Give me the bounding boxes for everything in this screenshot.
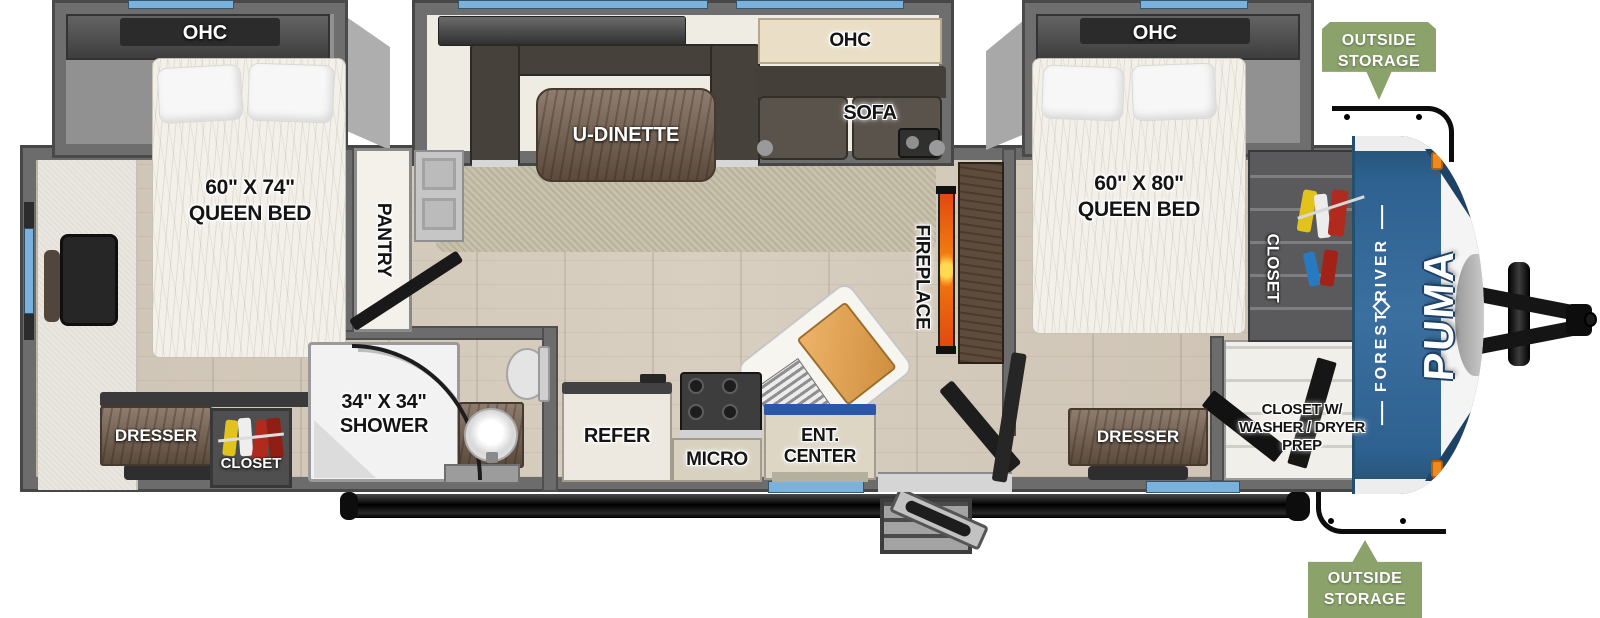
rv-floorplan: DRESSER CLOSET 34" X 34" SHOWER PANTRY U… bbox=[0, 0, 1600, 618]
rear-dresser-bench bbox=[124, 464, 216, 480]
rear-dresser-label: DRESSER bbox=[115, 426, 197, 446]
front-dresser: DRESSER bbox=[1068, 408, 1208, 466]
outside-storage-tag-top: OUTSIDE STORAGE bbox=[1322, 22, 1436, 100]
rear-wall-trim bbox=[24, 314, 34, 340]
rivet-dot bbox=[1328, 518, 1334, 524]
sofa-recliner-handle bbox=[929, 140, 945, 156]
front-bed-label-wrap: 60" X 80" QUEEN BED bbox=[1049, 166, 1229, 228]
faucet bbox=[486, 452, 498, 463]
tv-mount bbox=[44, 250, 60, 322]
bench-trim bbox=[472, 160, 518, 167]
front-bedroom-window bbox=[1146, 481, 1240, 493]
sofa-back bbox=[756, 66, 946, 98]
brand-model-label: PUMA bbox=[1415, 247, 1463, 382]
sofa-label-wrap: SOFA bbox=[810, 100, 930, 126]
rear-ohc-label-wrap: OHC bbox=[120, 16, 290, 50]
burner bbox=[688, 404, 704, 420]
tongue-jack bbox=[1508, 262, 1530, 366]
pillow bbox=[1041, 65, 1125, 122]
brand-model-wrap: PUMA bbox=[1411, 166, 1467, 464]
dinette-bench bbox=[470, 44, 520, 166]
rivet-dot bbox=[1344, 114, 1350, 120]
pillow bbox=[1131, 63, 1217, 122]
rear-closet-label: CLOSET bbox=[221, 455, 282, 472]
wd-label-line1: CLOSET W/ bbox=[1262, 401, 1343, 419]
outside-storage-bottom-line2: STORAGE bbox=[1324, 590, 1406, 611]
rear-ohc-label: OHC bbox=[183, 22, 227, 45]
fireplace-label-wrap: FIREPLACE bbox=[900, 212, 942, 342]
fireplace-label: FIREPLACE bbox=[910, 225, 932, 330]
outside-storage-top-line2: STORAGE bbox=[1338, 52, 1420, 73]
shower-label: SHOWER bbox=[340, 414, 428, 438]
entertainment-center-top bbox=[764, 404, 876, 415]
rear-bed-type-label: QUEEN BED bbox=[189, 201, 311, 227]
rivet-dot bbox=[1416, 114, 1422, 120]
cabinet-panel bbox=[422, 198, 456, 230]
u-dinette-label: U-DINETTE bbox=[573, 124, 680, 147]
slide-topper-awning bbox=[438, 16, 686, 46]
outside-storage-bottom-line1: OUTSIDE bbox=[1328, 569, 1403, 590]
chassis-rail-end-right bbox=[1286, 491, 1310, 521]
pillow bbox=[157, 64, 244, 124]
fireplace-cabinet bbox=[958, 162, 1004, 364]
ent-center-label: ENT. CENTER bbox=[766, 425, 874, 467]
chassis-rail-end-left bbox=[340, 492, 358, 520]
wd-label-line2: WASHER / DRYER bbox=[1239, 419, 1365, 437]
front-slideout-side-panel bbox=[986, 20, 1024, 150]
refrigerator-top bbox=[562, 382, 672, 394]
front-closet-label-wrap: CLOSET bbox=[1252, 208, 1292, 328]
refer-label: REFER bbox=[584, 425, 650, 448]
front-bed-size-label: 60" X 80" bbox=[1094, 171, 1184, 197]
sofa-label: SOFA bbox=[843, 102, 896, 125]
sofa-recliner-handle bbox=[757, 140, 773, 156]
sofa-ohc-label: OHC bbox=[829, 30, 870, 52]
rear-window bbox=[24, 228, 34, 314]
rear-bed-label-wrap: 60" X 74" QUEEN BED bbox=[160, 170, 340, 232]
outside-storage-tag-bottom: OUTSIDE STORAGE bbox=[1308, 540, 1422, 618]
pillow bbox=[247, 63, 335, 124]
entertainment-center-base bbox=[772, 472, 868, 482]
shower-size-label: 34" X 34" bbox=[341, 390, 426, 414]
burner bbox=[688, 378, 704, 394]
rivet-dot bbox=[1400, 518, 1406, 524]
burner bbox=[722, 404, 738, 420]
dinette-slideout-window bbox=[458, 0, 708, 9]
entertainment-center: ENT. CENTER bbox=[764, 412, 876, 480]
wd-label-line3: PREP bbox=[1282, 437, 1322, 455]
front-ohc-label-wrap: OHC bbox=[1070, 16, 1240, 50]
rear-slideout-side-panel bbox=[348, 18, 390, 150]
bench-trim bbox=[712, 160, 758, 167]
front-bed-type-label: QUEEN BED bbox=[1078, 197, 1200, 223]
tv-mount-dot bbox=[906, 136, 919, 149]
hitch-ball-knob bbox=[1584, 312, 1597, 327]
microwave-cabinet: MICRO bbox=[672, 438, 762, 482]
rear-closet-label-wrap: CLOSET bbox=[210, 452, 292, 474]
u-dinette-table: U-DINETTE bbox=[536, 88, 716, 182]
shower-label-wrap: 34" X 34" SHOWER bbox=[312, 388, 456, 440]
chassis-rail bbox=[345, 494, 1305, 518]
clearance-light bbox=[1431, 152, 1443, 170]
washer-dryer-label-wrap: CLOSET W/ WASHER / DRYER PREP bbox=[1228, 398, 1376, 458]
refrigerator: REFER bbox=[562, 390, 672, 482]
rear-bed-size-label: 60" X 74" bbox=[205, 175, 295, 201]
pantry-label: PANTRY bbox=[372, 203, 394, 277]
burner bbox=[722, 378, 738, 394]
front-slideout-window bbox=[1140, 0, 1248, 9]
door-side-window bbox=[768, 481, 864, 493]
stove-front-trim bbox=[680, 430, 762, 438]
rear-bedroom-tv bbox=[60, 234, 118, 326]
fireplace-trim bbox=[936, 186, 956, 194]
front-dresser-label: DRESSER bbox=[1097, 427, 1179, 447]
fireplace-trim bbox=[936, 346, 956, 354]
front-ohc-label: OHC bbox=[1133, 22, 1177, 45]
rear-wall-trim bbox=[24, 202, 34, 228]
dinette-bench bbox=[710, 44, 760, 166]
clearance-light bbox=[1431, 460, 1443, 478]
refrigerator-handle bbox=[640, 374, 666, 383]
micro-label: MICRO bbox=[686, 449, 748, 471]
rear-slideout-window bbox=[128, 0, 234, 9]
cabinet-panel bbox=[422, 158, 456, 190]
front-dresser-bench bbox=[1088, 466, 1188, 480]
outside-storage-top-line1: OUTSIDE bbox=[1342, 31, 1417, 52]
rear-dresser: DRESSER bbox=[100, 406, 212, 466]
front-closet-label: CLOSET bbox=[1262, 234, 1282, 303]
toilet-tank bbox=[538, 346, 550, 402]
sofa-slideout-window bbox=[736, 0, 904, 9]
sofa-overhead-cabinet: OHC bbox=[758, 18, 942, 64]
